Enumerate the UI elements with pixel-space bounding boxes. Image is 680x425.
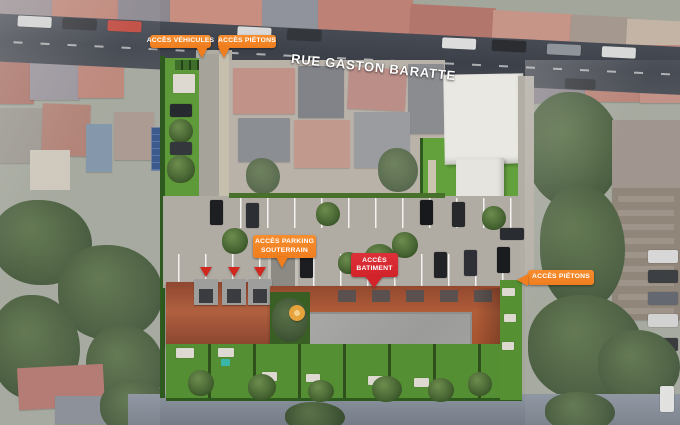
acces-vehicules-pointer	[196, 47, 208, 58]
acces-parking-pointer	[276, 257, 288, 268]
aerial-haze	[229, 60, 445, 200]
acces-batiment-label: ACCÈS BATIMENT	[351, 253, 398, 277]
garden-terrace	[502, 342, 514, 350]
building-rooftop-units	[338, 290, 494, 302]
tree	[169, 119, 193, 143]
acces-vehicules-text: ACCÈS VÉHICULES	[147, 37, 215, 45]
parking-spaces-north	[240, 198, 518, 228]
parked-car	[246, 203, 259, 228]
parked-car	[420, 200, 433, 225]
driveway	[199, 54, 219, 200]
white-building-main	[443, 73, 525, 164]
pedestrian-path	[219, 54, 229, 200]
existing-houses-block	[229, 60, 445, 200]
tree	[222, 228, 248, 254]
tree	[316, 202, 340, 226]
garden-furniture-teal	[221, 359, 230, 366]
garden-terrace	[176, 348, 194, 358]
acces-pietons-nord-text: ACCÈS PIÉTONS	[218, 37, 276, 45]
parked-car	[500, 228, 524, 240]
acces-batiment-pointer	[365, 276, 383, 288]
tree	[482, 206, 506, 230]
parked-car	[497, 247, 510, 273]
acces-pietons-est-label: ACCÈS PIÉTONS	[528, 270, 594, 285]
garden-terrace	[218, 348, 234, 357]
lane-east	[518, 76, 534, 278]
tree	[468, 372, 492, 396]
garage-arrow-icon	[254, 267, 266, 277]
site-plan-image: RUE GASTON BARATTE ACCÈS VÉHICULES ACCÈS…	[0, 0, 680, 425]
parked-car	[452, 202, 465, 227]
tree	[167, 155, 195, 183]
garden-shed	[173, 74, 195, 93]
garage-door	[199, 289, 213, 303]
acces-batiment-line1: ACCÈS	[362, 257, 387, 265]
bin-shelter	[175, 60, 199, 70]
garden-east	[500, 280, 522, 400]
parked-car	[170, 142, 192, 155]
acces-pietons-nord-pointer	[218, 47, 230, 58]
acces-pietons-est-pointer	[517, 274, 528, 286]
tree-canopy	[272, 298, 308, 342]
garage-door	[227, 289, 241, 303]
garden-terrace	[414, 378, 429, 387]
parked-car	[464, 250, 477, 276]
acces-parking-line1: ACCÈS PARKING	[255, 238, 314, 246]
tree	[188, 370, 214, 396]
garage-arrow-icon	[228, 267, 240, 277]
garage-arrow-icon	[200, 267, 212, 277]
parked-car	[210, 200, 223, 225]
garden-terrace	[504, 314, 516, 322]
tree	[308, 380, 334, 402]
acces-parking-label: ACCÈS PARKING SOUTERRAIN	[253, 235, 316, 258]
tree	[428, 378, 454, 402]
acces-parking-line2: SOUTERRAIN	[261, 247, 308, 255]
garage-door	[253, 289, 267, 303]
garden-terrace	[502, 288, 515, 296]
tree	[372, 376, 402, 402]
parked-car	[434, 252, 447, 278]
parked-car	[170, 104, 192, 117]
acces-pietons-est-text: ACCÈS PIÉTONS	[532, 273, 590, 281]
parasol-icon	[289, 305, 305, 321]
acces-batiment-line2: BATIMENT	[356, 265, 392, 273]
tree	[248, 374, 276, 400]
